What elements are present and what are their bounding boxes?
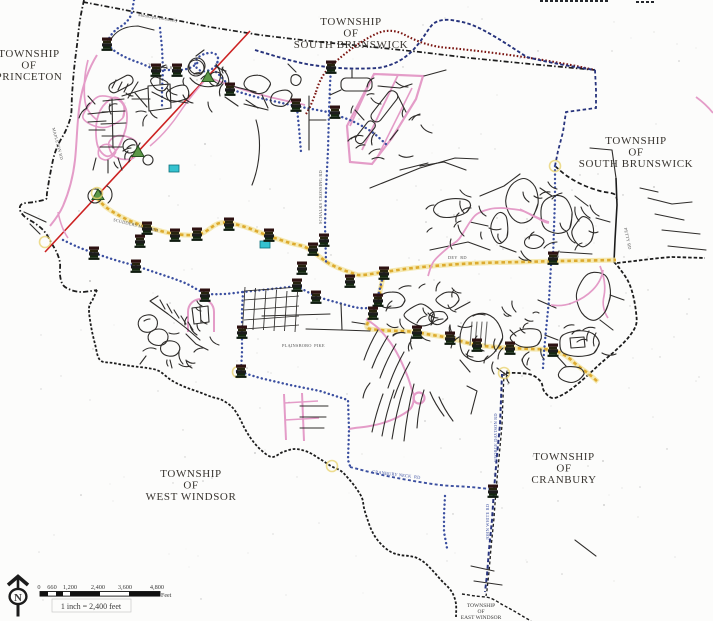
svg-text:OF: OF (556, 463, 571, 475)
svg-text:TOWNSHIP: TOWNSHIP (605, 135, 666, 147)
svg-text:OF: OF (183, 480, 198, 492)
svg-text:3,600: 3,600 (118, 584, 132, 591)
svg-text:N: N (14, 592, 22, 604)
svg-text:0: 0 (37, 584, 40, 591)
svg-text:2,400: 2,400 (91, 584, 105, 591)
svg-text:SOUTH BRUNSWICK: SOUTH BRUNSWICK (579, 158, 693, 170)
svg-text:OF: OF (21, 60, 36, 72)
svg-text:DEY RD: DEY RD (448, 255, 467, 260)
svg-text:GEORGE DAVISON RD: GEORGE DAVISON RD (493, 413, 498, 462)
svg-text:OF: OF (628, 147, 643, 159)
svg-text:Feet: Feet (161, 593, 172, 599)
svg-text:TOWNSHIP: TOWNSHIP (0, 48, 60, 60)
svg-text:OF: OF (343, 28, 358, 40)
svg-text:4,800: 4,800 (150, 584, 164, 591)
svg-text:CRANBURY: CRANBURY (531, 474, 596, 486)
svg-text:TOWNSHIP: TOWNSHIP (320, 16, 381, 28)
svg-text:1,200: 1,200 (63, 584, 77, 591)
svg-text:TOWNSHIP: TOWNSHIP (533, 451, 594, 463)
svg-text:JOHN WHITE RD: JOHN WHITE RD (485, 504, 490, 540)
svg-text:WEST WINDSOR: WEST WINDSOR (146, 491, 237, 503)
svg-text:SOUTH BRUNSWICK: SOUTH BRUNSWICK (294, 39, 408, 51)
svg-text:SCHALKS CROSSING RD: SCHALKS CROSSING RD (318, 170, 323, 224)
svg-text:PRINCETON: PRINCETON (0, 71, 62, 83)
svg-text:TOWNSHIP: TOWNSHIP (160, 468, 221, 480)
svg-text:1 inch = 2,400 feet: 1 inch = 2,400 feet (61, 602, 122, 611)
svg-text:PLAINSBORO PIKE: PLAINSBORO PIKE (282, 343, 325, 348)
svg-text:660: 660 (47, 584, 56, 591)
svg-text:EAST WINDSOR: EAST WINDSOR (461, 615, 502, 621)
